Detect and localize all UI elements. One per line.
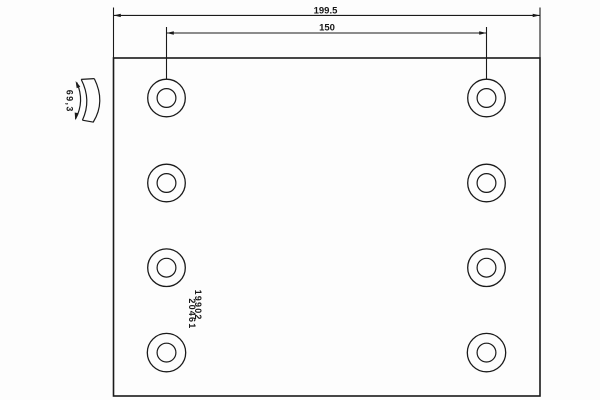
svg-text:20461: 20461: [187, 298, 197, 329]
svg-text:199.5: 199.5: [314, 6, 338, 17]
svg-text:150: 150: [319, 22, 335, 33]
svg-text:69,3: 69,3: [64, 90, 74, 113]
